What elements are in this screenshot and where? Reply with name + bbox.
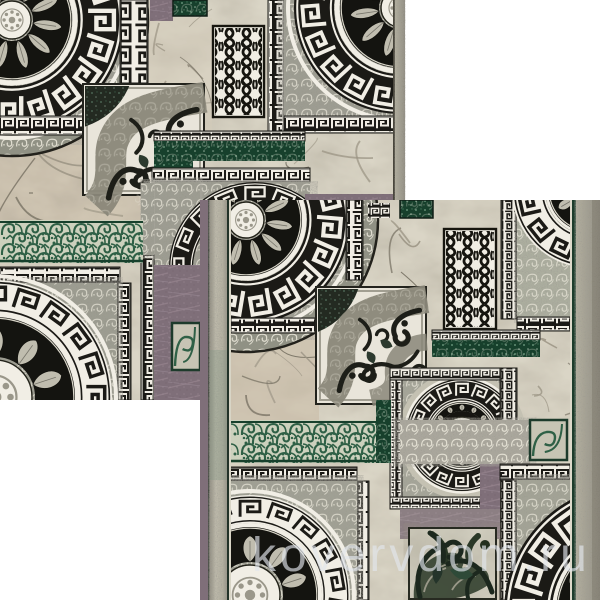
svg-text:kovervdom.ru: kovervdom.ru — [252, 529, 591, 582]
